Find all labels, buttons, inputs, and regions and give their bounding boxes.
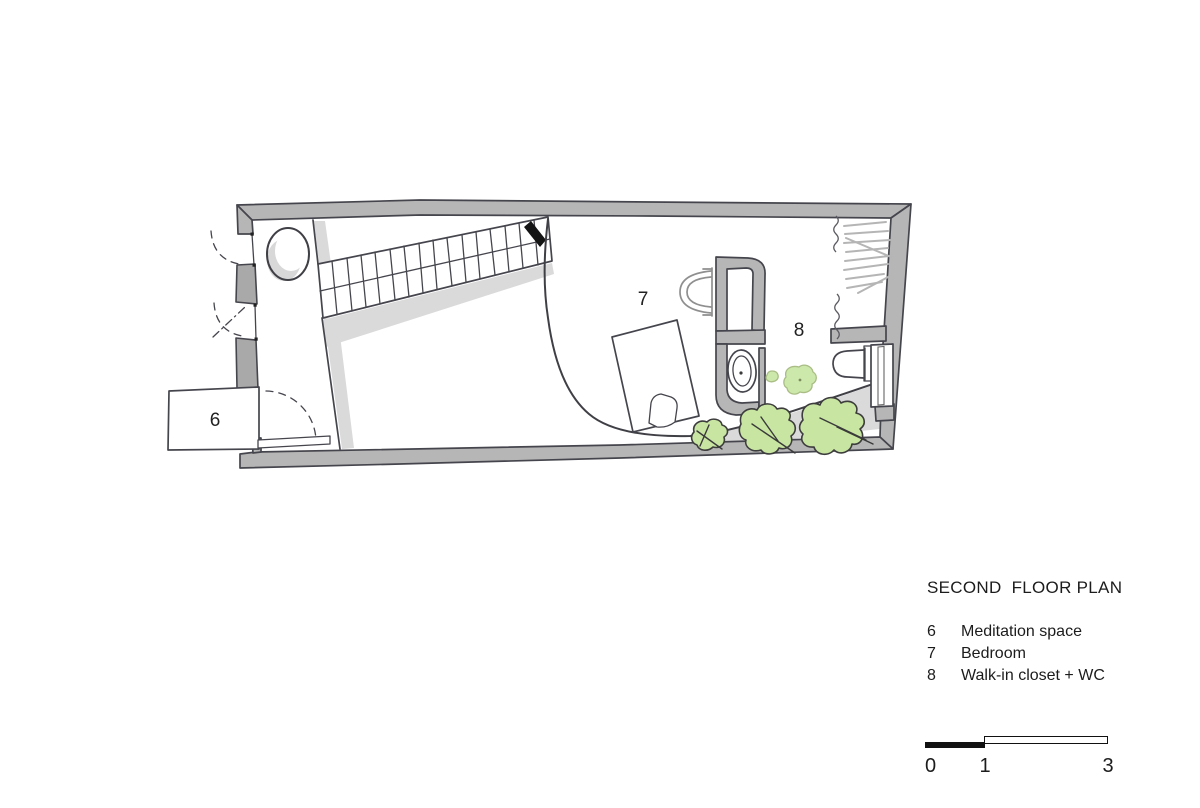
legend-item-label: Walk-in closet + WC	[961, 665, 1105, 687]
scale-bar-open-segment	[984, 736, 1108, 744]
window-swing-arc	[211, 231, 239, 264]
bathtub-nook	[716, 344, 765, 415]
wash-basin	[680, 268, 712, 316]
drain-dot	[739, 371, 742, 374]
plant	[739, 404, 795, 454]
skylight-circle	[267, 228, 309, 281]
room-label-meditation-space: 6	[210, 410, 221, 432]
legend-item: 8 Walk-in closet + WC	[927, 665, 1122, 687]
left-wall-pier	[236, 338, 258, 389]
legend-item-number: 7	[927, 643, 961, 665]
wc-door	[871, 344, 893, 407]
shower-enclosure	[716, 257, 765, 344]
door-leaf	[258, 436, 330, 448]
legend-item-label: Bedroom	[961, 643, 1026, 665]
scale-tick: 0	[925, 755, 936, 778]
window-swing-arc	[214, 303, 242, 336]
floor-plan-page: 6 7 8 SECOND FLOOR PLAN 6 Meditation spa…	[0, 0, 1200, 808]
room-label-closet-wc: 8	[794, 320, 805, 342]
toilet	[833, 346, 873, 381]
legend-item: 7 Bedroom	[927, 643, 1122, 665]
plan-title: SECOND FLOOR PLAN	[927, 578, 1122, 598]
pillow	[649, 394, 677, 427]
plant-small	[766, 371, 778, 382]
left-wall-pier	[236, 264, 257, 304]
bed	[612, 320, 699, 432]
legend: SECOND FLOOR PLAN 6 Meditation space 7 B…	[927, 578, 1122, 687]
scale-tick: 3	[1102, 755, 1113, 778]
legend-item-label: Meditation space	[961, 621, 1082, 643]
meditation-balcony	[168, 387, 330, 450]
legend-item: 6 Meditation space	[927, 621, 1122, 643]
legend-items: 6 Meditation space 7 Bedroom 8 Walk-in c…	[927, 621, 1122, 687]
scale-tick: 1	[979, 755, 990, 778]
legend-item-number: 6	[927, 621, 961, 643]
scale-bar-solid-segment	[925, 742, 985, 748]
legend-item-number: 8	[927, 665, 961, 687]
plant	[692, 419, 728, 450]
scale-bar: 0 1 3	[925, 735, 1125, 785]
top-wall	[237, 200, 911, 220]
wardrobe-hangers	[834, 216, 891, 339]
door-swing-arc	[266, 391, 316, 440]
room-label-bedroom: 7	[638, 289, 649, 311]
